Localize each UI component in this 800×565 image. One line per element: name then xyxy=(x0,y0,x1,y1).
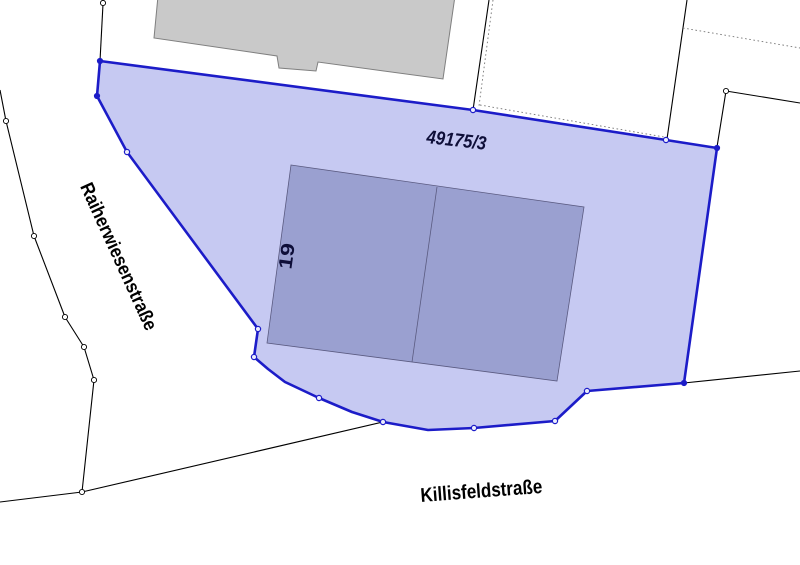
parcel-point-marker-6 xyxy=(471,425,476,430)
parcel-point-marker-8 xyxy=(584,388,589,393)
boundary-point-marker-8 xyxy=(723,88,728,93)
boundary-point-marker-1 xyxy=(100,0,105,5)
boundary-point-marker-5 xyxy=(81,344,86,349)
parcel-point-marker-5 xyxy=(380,419,385,424)
parcel-corner-marker-3 xyxy=(714,145,719,150)
parcel-corner-marker-1 xyxy=(97,58,102,63)
house-number-label: 19 xyxy=(275,242,299,271)
cadastral-map-view: 49175/3 19 Raiherwiesenstraße Killisfeld… xyxy=(0,0,800,565)
parcel-point-marker-7 xyxy=(552,418,557,423)
boundary-point-marker-2 xyxy=(3,118,8,123)
parcel-point-marker-4 xyxy=(316,395,321,400)
boundary-point-marker-3 xyxy=(31,233,36,238)
parcel-point-marker-2 xyxy=(255,326,260,331)
parcel-point-marker-10 xyxy=(663,137,668,142)
parcel-point-marker-9 xyxy=(470,107,475,112)
boundary-point-marker-6 xyxy=(91,377,96,382)
parcel-corner-marker-4 xyxy=(681,380,686,385)
cadastral-map-canvas: 49175/3 19 Raiherwiesenstraße Killisfeld… xyxy=(0,0,800,565)
parcel-point-marker-1 xyxy=(124,149,129,154)
boundary-point-marker-4 xyxy=(62,314,67,319)
boundary-point-marker-7 xyxy=(79,489,84,494)
parcel-corner-marker-2 xyxy=(94,93,99,98)
parcel-point-marker-3 xyxy=(251,354,256,359)
